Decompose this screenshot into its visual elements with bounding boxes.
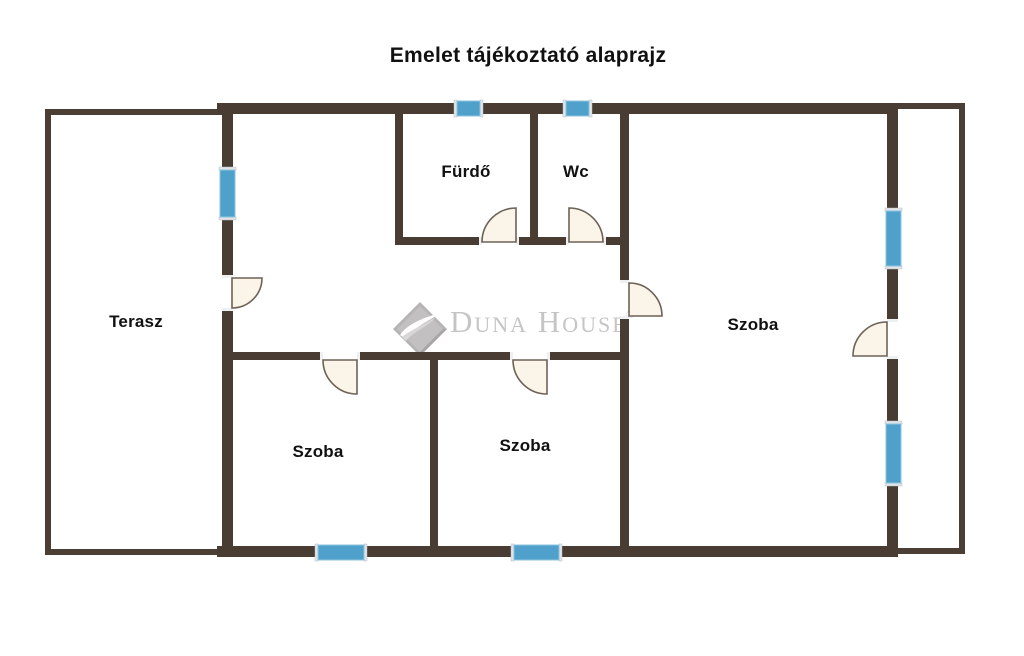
door-terrace xyxy=(232,278,262,308)
door-bathroom xyxy=(482,208,516,242)
window-terrace-wall xyxy=(219,167,236,220)
room-label-szoba-right: Szoba xyxy=(727,315,778,335)
windows xyxy=(219,100,902,561)
window-right-upper xyxy=(885,208,902,269)
room-label-furdo: Fürdő xyxy=(441,162,490,182)
terrace-walls xyxy=(45,109,222,555)
window-top-bathroom xyxy=(454,100,483,117)
window-top-wc xyxy=(563,100,592,117)
floorplan-page: Emelet tájékoztató alaprajz Duna House ® xyxy=(0,0,1024,656)
page-title: Emelet tájékoztató alaprajz xyxy=(390,44,667,68)
room-label-szoba-bottom-mid: Szoba xyxy=(499,436,550,456)
window-right-lower xyxy=(885,421,902,486)
window-bottom-mid-room xyxy=(511,544,562,561)
door-right-wall xyxy=(853,322,887,356)
exterior-walls xyxy=(217,103,898,557)
room-label-terasz: Terasz xyxy=(109,312,163,332)
door-bottom-mid-room xyxy=(513,360,547,394)
room-label-szoba-bottom-left: Szoba xyxy=(292,442,343,462)
room-label-wc: Wc xyxy=(563,162,589,182)
door-jambs xyxy=(222,237,898,360)
doors xyxy=(232,208,887,394)
door-wc xyxy=(569,208,603,242)
door-right-room xyxy=(629,283,662,316)
window-bottom-left-room xyxy=(315,544,367,561)
door-bottom-left-room xyxy=(323,360,357,394)
right-balcony-walls xyxy=(898,103,965,554)
